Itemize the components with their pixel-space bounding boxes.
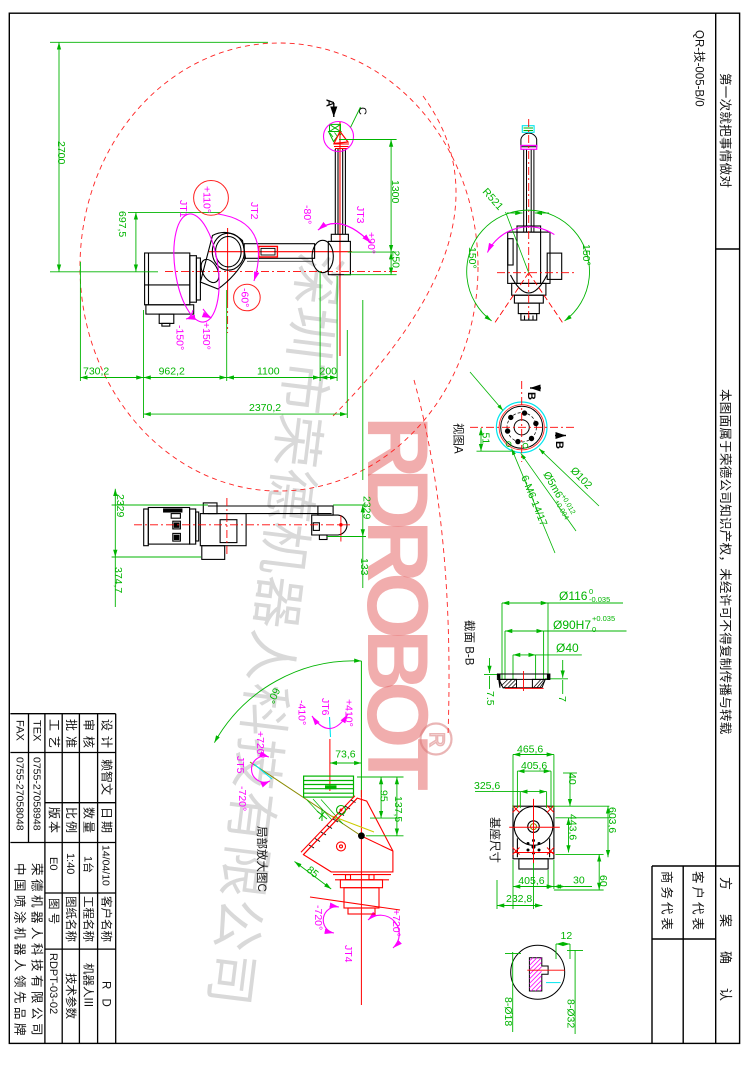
svg-text:方案确认: 方案确认 (718, 877, 733, 1025)
svg-text:7.5: 7.5 (484, 691, 496, 706)
svg-text:+150°: +150° (200, 322, 212, 350)
svg-text:数量: 数量 (82, 807, 97, 835)
svg-text:技术参数: 技术参数 (64, 973, 78, 1019)
svg-text:截面 B-B: 截面 B-B (463, 620, 477, 666)
svg-text:JT2: JT2 (248, 202, 260, 220)
svg-text:30: 30 (573, 875, 585, 887)
svg-text:+90°: +90° (365, 232, 377, 254)
svg-text:150°: 150° (466, 247, 478, 269)
svg-text:200: 200 (320, 366, 338, 378)
svg-text:客户名称: 客户名称 (100, 896, 114, 942)
svg-text:2370,2: 2370,2 (249, 402, 281, 414)
svg-text:12: 12 (561, 930, 573, 942)
svg-text:697,5: 697,5 (116, 211, 128, 237)
svg-text:133: 133 (358, 558, 370, 576)
svg-text:C: C (356, 107, 368, 115)
svg-text:第一次就把事情做对: 第一次就把事情做对 (718, 73, 733, 188)
svg-text:-150°: -150° (174, 325, 186, 350)
svg-text:TEX: TEX (31, 720, 43, 742)
svg-text:JT6: JT6 (319, 698, 331, 716)
svg-text:RDPT-03-02: RDPT-03-02 (47, 953, 59, 1014)
svg-text:40: 40 (566, 773, 578, 785)
svg-text:325,6: 325,6 (474, 780, 500, 792)
svg-text:批准: 批准 (64, 719, 79, 753)
svg-text:客户代表: 客户代表 (691, 871, 706, 933)
svg-text:设计: 设计 (100, 719, 114, 753)
svg-text:730,2: 730,2 (83, 366, 109, 378)
svg-text:-80°: -80° (301, 205, 313, 224)
svg-text:Ø90H7: Ø90H7 (553, 618, 591, 632)
svg-text:本图面属于荣德公司知识产权，未经许可不得复制传播与转载: 本图面属于荣德公司知识产权，未经许可不得复制传播与转载 (718, 389, 733, 735)
svg-text:JT4: JT4 (342, 945, 354, 963)
svg-text:250: 250 (390, 251, 402, 269)
svg-text:0755-27058948: 0755-27058948 (31, 757, 43, 831)
svg-text:JT5: JT5 (234, 756, 246, 774)
svg-text:+720°: +720° (254, 731, 266, 759)
svg-text:1:40: 1:40 (64, 853, 76, 874)
svg-text:中国喷涂机器人领先品牌: 中国喷涂机器人领先品牌 (13, 863, 28, 1039)
svg-text:局部放大图C: 局部放大图C (255, 826, 269, 892)
svg-text:603,6: 603,6 (606, 807, 618, 833)
svg-text:1100: 1100 (257, 366, 280, 378)
svg-text:荣德机器人科技有限公司: 荣德机器人科技有限公司 (30, 863, 45, 1039)
svg-text:版本: 版本 (47, 807, 61, 835)
svg-text:465,6: 465,6 (517, 744, 543, 756)
svg-text:工艺: 工艺 (47, 719, 61, 753)
svg-text:232,8: 232,8 (506, 893, 532, 905)
svg-text:60: 60 (597, 875, 609, 887)
svg-text:1台: 1台 (82, 856, 96, 873)
svg-text:+110°: +110° (201, 186, 213, 213)
svg-text:962,2: 962,2 (159, 366, 185, 378)
svg-text:Ø40: Ø40 (556, 641, 579, 655)
svg-text:443,6: 443,6 (566, 814, 578, 840)
svg-text:-410°: -410° (296, 700, 308, 725)
svg-text:E0: E0 (47, 857, 59, 870)
svg-text:B: B (553, 441, 565, 449)
svg-text:1300: 1300 (389, 180, 401, 204)
svg-text:机器人III: 机器人III (82, 963, 96, 1007)
svg-text:工程名称: 工程名称 (82, 896, 96, 942)
svg-text:405,6: 405,6 (521, 760, 547, 772)
svg-text:+410°: +410° (343, 699, 355, 727)
svg-text:JT3: JT3 (354, 206, 366, 224)
svg-text:8-Ø32: 8-Ø32 (565, 999, 577, 1028)
svg-text:图 号: 图 号 (47, 898, 60, 924)
svg-text:Ø116: Ø116 (559, 589, 588, 603)
svg-text:审核: 审核 (82, 719, 97, 753)
svg-text:405,6: 405,6 (518, 875, 544, 887)
svg-text:基座尺寸: 基座尺寸 (488, 817, 502, 863)
svg-text:150°: 150° (580, 244, 592, 266)
svg-text:73,6: 73,6 (335, 749, 356, 761)
svg-text:137,5: 137,5 (392, 796, 404, 822)
svg-text:图纸名称: 图纸名称 (64, 896, 78, 942)
svg-text:374,7: 374,7 (112, 567, 124, 593)
svg-text:-60°: -60° (239, 288, 251, 307)
svg-text:7: 7 (556, 696, 568, 702)
svg-text:QR-技-005-B/0: QR-技-005-B/0 (693, 30, 706, 107)
svg-text:R: R (425, 732, 448, 747)
svg-text:-720°: -720° (312, 905, 324, 930)
svg-text:8-Ø18: 8-Ø18 (502, 997, 514, 1026)
svg-text:比例: 比例 (64, 807, 78, 835)
svg-text:2700: 2700 (55, 141, 67, 165)
svg-text:-720°: -720° (236, 786, 248, 811)
svg-text:R D: R D (100, 981, 112, 1010)
svg-text:赖智文: 赖智文 (100, 759, 115, 795)
svg-text:FAX: FAX (14, 720, 26, 741)
svg-text:JT1: JT1 (177, 200, 189, 218)
svg-text:B: B (525, 392, 537, 400)
svg-text:51: 51 (480, 433, 492, 445)
svg-text:0755-27058048: 0755-27058048 (14, 757, 26, 831)
svg-text:14/04/10: 14/04/10 (100, 845, 112, 886)
svg-text:2329: 2329 (361, 496, 373, 520)
svg-text:95: 95 (378, 790, 390, 802)
svg-text:视图A: 视图A (452, 423, 466, 454)
svg-text:日期: 日期 (100, 807, 114, 835)
svg-text:商务代表: 商务代表 (660, 871, 675, 933)
svg-text:+0.035: +0.035 (592, 614, 615, 623)
svg-text:0: 0 (592, 625, 596, 634)
svg-text:2329: 2329 (114, 494, 126, 518)
